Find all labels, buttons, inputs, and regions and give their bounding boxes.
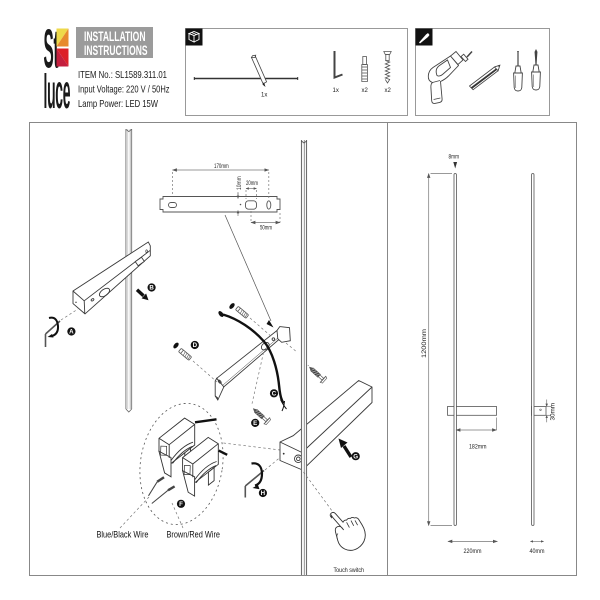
svg-text:Blue/Black Wire: Blue/Black Wire	[97, 530, 149, 540]
svg-text:170mm: 170mm	[214, 163, 229, 170]
svg-text:H: H	[261, 490, 266, 497]
svg-text:20mm: 20mm	[246, 180, 258, 187]
svg-text:30mm: 30mm	[550, 403, 557, 421]
svg-text:G: G	[353, 453, 358, 460]
svg-text:220mm: 220mm	[464, 548, 482, 555]
svg-text:40mm: 40mm	[530, 548, 545, 555]
svg-text:Input Voltage: 220 V / 50Hz: Input Voltage: 220 V / 50Hz	[78, 84, 170, 96]
svg-text:1x: 1x	[333, 88, 339, 94]
svg-text:8mm: 8mm	[449, 154, 460, 161]
svg-text:Touch switch: Touch switch	[334, 567, 365, 574]
svg-text:x2: x2	[385, 88, 392, 94]
svg-text:1200mm: 1200mm	[421, 329, 428, 358]
svg-text:INSTRUCTIONS: INSTRUCTIONS	[84, 42, 148, 58]
svg-text:A: A	[69, 329, 74, 336]
svg-text:ITEM No.: SL1589.311.01: ITEM No.: SL1589.311.01	[78, 69, 167, 81]
svg-text:luce: luce	[44, 66, 71, 119]
svg-text:C: C	[272, 391, 277, 398]
svg-text:182mm: 182mm	[469, 444, 487, 451]
svg-text:10mm: 10mm	[236, 176, 243, 190]
svg-text:E: E	[253, 420, 257, 427]
svg-text:1x: 1x	[261, 93, 267, 99]
svg-text:F: F	[179, 501, 183, 508]
svg-text:Brown/Red Wire: Brown/Red Wire	[167, 530, 221, 540]
svg-text:D: D	[193, 342, 198, 349]
svg-text:B: B	[149, 285, 154, 292]
svg-text:50mm: 50mm	[260, 225, 272, 232]
svg-text:Lamp Power: LED 15W: Lamp Power: LED 15W	[78, 98, 158, 110]
svg-text:x2: x2	[362, 88, 369, 94]
